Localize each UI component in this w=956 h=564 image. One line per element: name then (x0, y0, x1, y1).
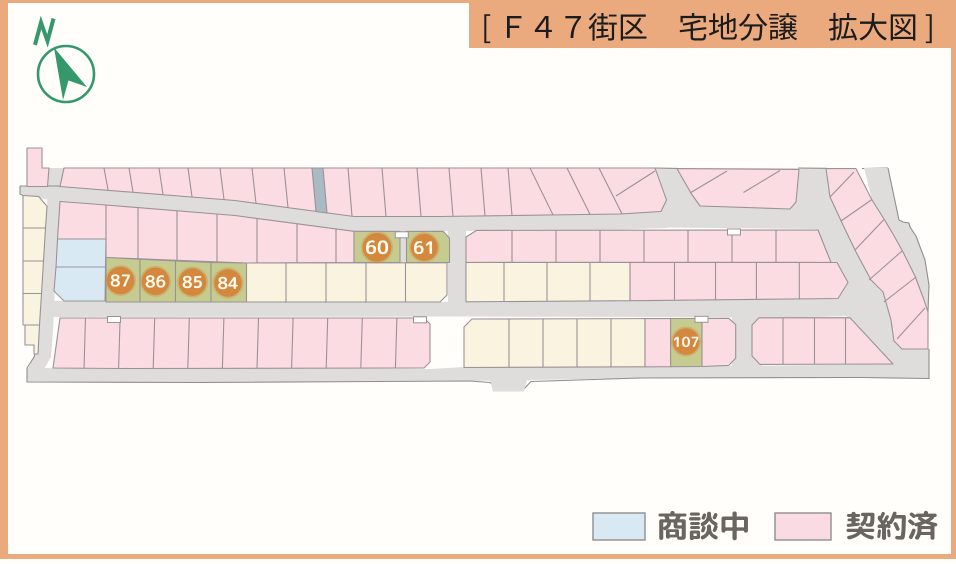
svg-text:60: 60 (365, 234, 389, 260)
svg-text:[ Ｆ４７街区 宅地分譲 拡大図 ]: [ Ｆ４７街区 宅地分譲 拡大図 ] (481, 3, 935, 47)
svg-text:85: 85 (182, 271, 203, 294)
svg-text:商談中: 商談中 (657, 504, 750, 547)
svg-text:86: 86 (145, 270, 166, 293)
svg-text:87: 87 (110, 270, 131, 293)
svg-text:84: 84 (217, 272, 238, 295)
svg-text:61: 61 (413, 235, 435, 260)
svg-text:契約済: 契約済 (845, 504, 938, 547)
svg-text:107: 107 (673, 333, 700, 352)
